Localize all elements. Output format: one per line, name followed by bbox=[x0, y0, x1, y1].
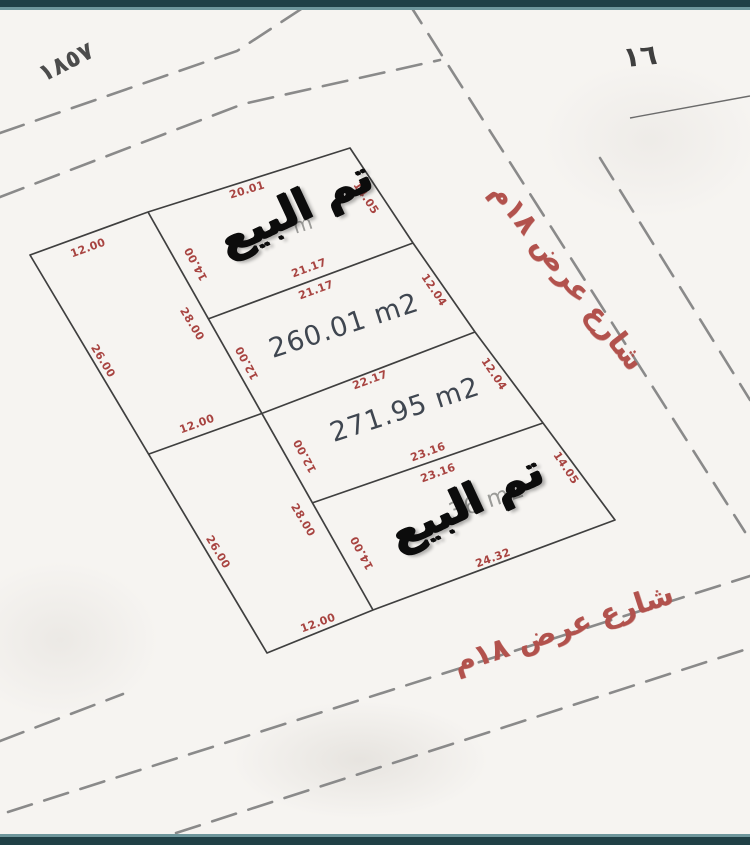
frame-bar-bottom bbox=[0, 837, 750, 845]
boundary-line-parcel-16 bbox=[630, 96, 750, 118]
parcel-number-top-right: ١٦ bbox=[621, 38, 658, 74]
center-divider-line bbox=[148, 212, 373, 610]
frame-bar-top-accent bbox=[0, 7, 750, 10]
survey-sketch-page: ١٨٥٧ ١٦ 12.00 26.00 28.00 12.00 26.00 28… bbox=[0, 0, 750, 845]
frame-bar-top bbox=[0, 0, 750, 7]
dashed-parcel-line-bottomleft bbox=[0, 694, 123, 741]
dashed-road-line-topleft-lower bbox=[0, 60, 440, 197]
